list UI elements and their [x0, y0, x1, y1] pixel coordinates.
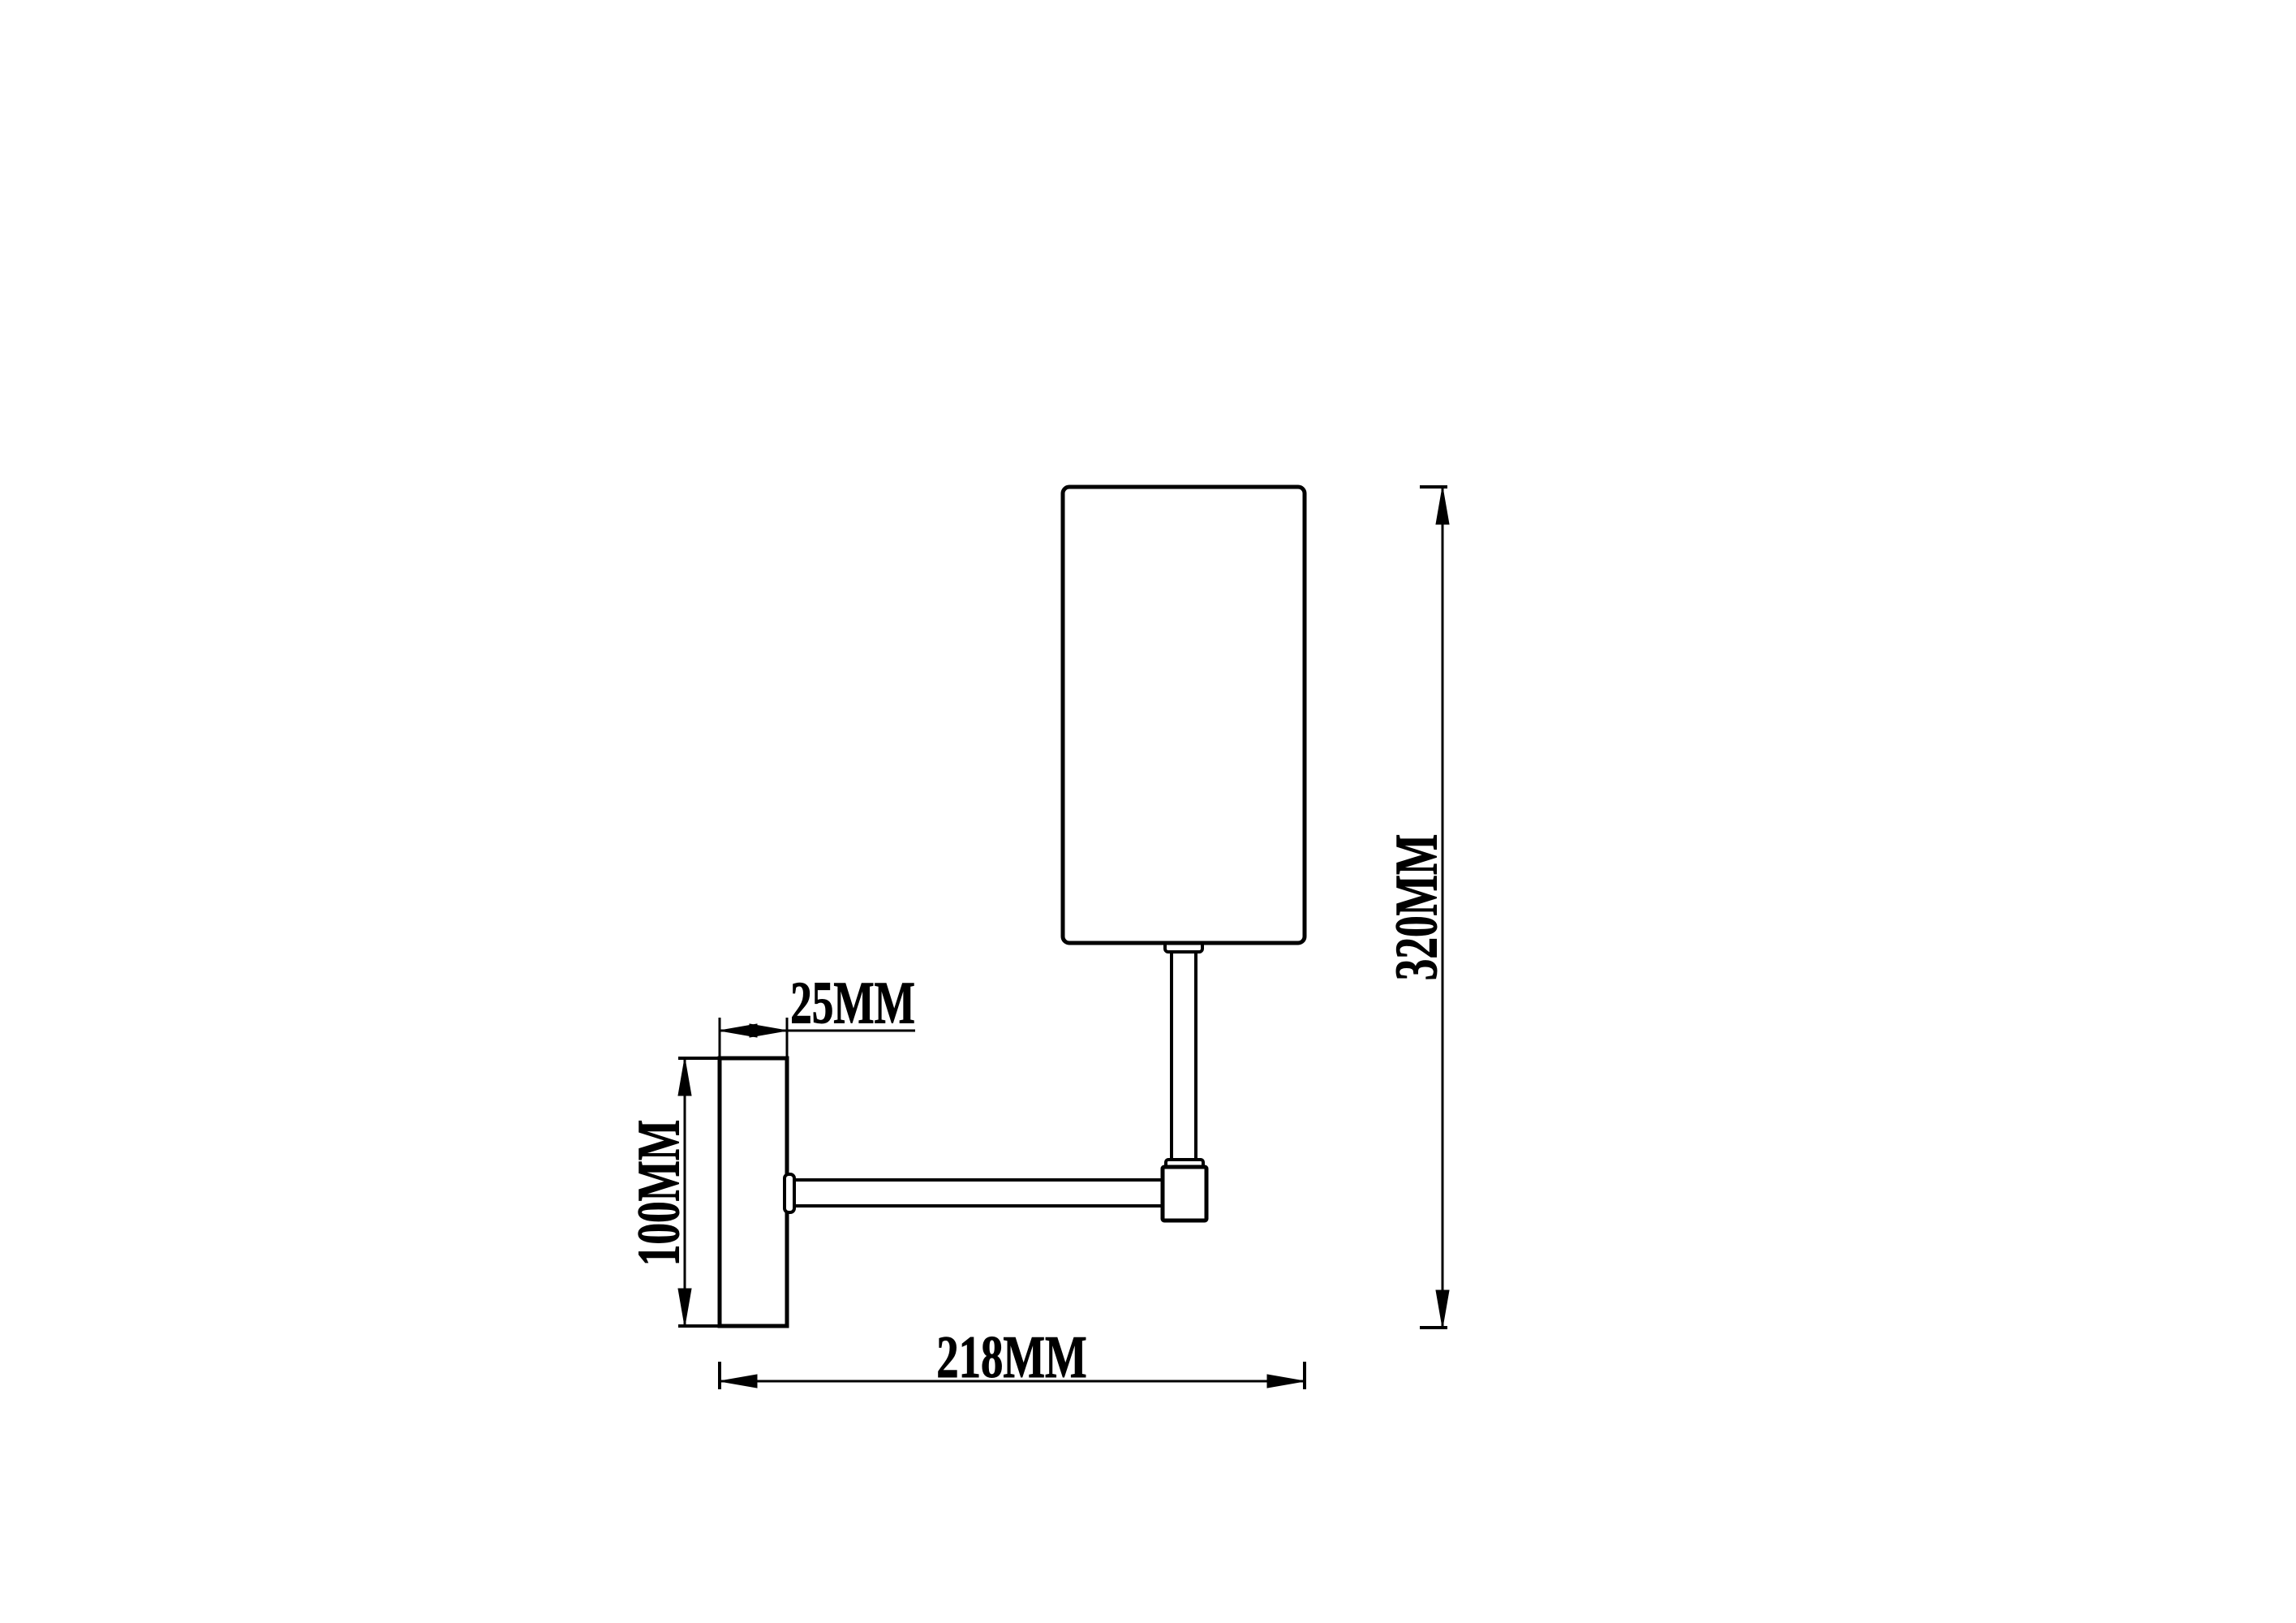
dimension-label-218mm: 218MM — [936, 1324, 1086, 1391]
wall-lamp-dimension-drawing: 25MM 100MM 218MM 320MM — [0, 0, 2296, 1623]
dimension-100mm: 100MM — [626, 1058, 721, 1326]
elbow-joint — [1163, 1167, 1206, 1220]
support-arm — [793, 1180, 1166, 1206]
arrow-right-icon — [1267, 1375, 1305, 1388]
arrow-up-icon — [1436, 487, 1449, 524]
arrow-up-icon — [678, 1058, 691, 1096]
lamp-fixture — [720, 487, 1305, 1326]
dimension-218mm: 218MM — [720, 1324, 1305, 1391]
arrow-right-icon — [750, 1024, 787, 1037]
arm-flange — [785, 1174, 794, 1212]
dimension-25mm: 25MM — [720, 970, 915, 1058]
dimension-label-320mm: 320MM — [1383, 834, 1449, 980]
arrow-down-icon — [1436, 1290, 1449, 1328]
lamp-shade — [1063, 487, 1305, 943]
technical-drawing-canvas: 25MM 100MM 218MM 320MM — [0, 0, 2296, 1623]
wall-plate — [720, 1058, 787, 1326]
dimension-320mm: 320MM — [1383, 487, 1449, 1328]
dimension-label-100mm: 100MM — [626, 1120, 691, 1266]
lamp-stem — [1172, 949, 1196, 1161]
arrow-left-icon — [720, 1375, 757, 1388]
arrow-down-icon — [678, 1289, 691, 1326]
dimension-label-25mm: 25MM — [790, 970, 915, 1035]
